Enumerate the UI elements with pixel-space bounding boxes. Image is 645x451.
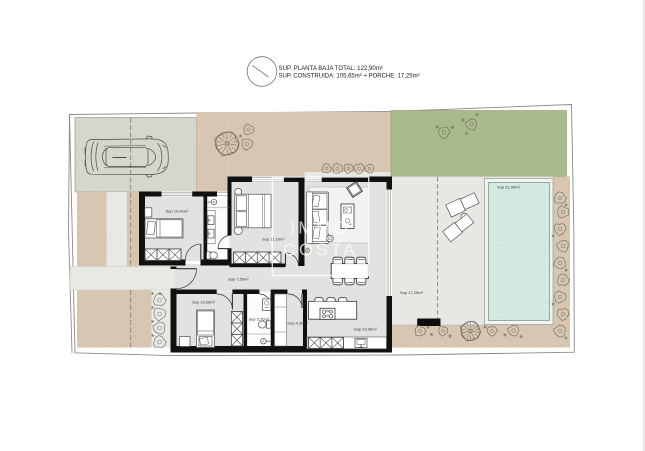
svg-text:Sup 17,25m²: Sup 17,25m²: [400, 290, 424, 295]
svg-text:Sup 3,70m²: Sup 3,70m²: [249, 316, 270, 321]
svg-text:SUP. PLANTA BAJA TOTAL: 122,90: SUP. PLANTA BAJA TOTAL: 122,90m²: [279, 65, 383, 72]
svg-text:Sup 23,30m²: Sup 23,30m²: [354, 326, 378, 331]
svg-text:Sup 21,00m²: Sup 21,00m²: [497, 185, 521, 190]
svg-text:IMMO: IMMO: [290, 218, 350, 238]
svg-text:Sup 7,50m²: Sup 7,50m²: [228, 277, 249, 282]
svg-text:Sup 11,10m²: Sup 11,10m²: [262, 237, 285, 242]
svg-text:Sup 10,00m²: Sup 10,00m²: [192, 299, 216, 304]
svg-text:SUP. CONSTRUIDA: 105,65m² + PO: SUP. CONSTRUIDA: 105,65m² + PORCHE: 17,2…: [279, 74, 420, 80]
svg-text:Sup 4,30m²: Sup 4,30m²: [287, 320, 308, 325]
svg-text:COSTA: COSTA: [283, 240, 358, 260]
svg-text:Sup 10,00m²: Sup 10,00m²: [166, 209, 190, 214]
